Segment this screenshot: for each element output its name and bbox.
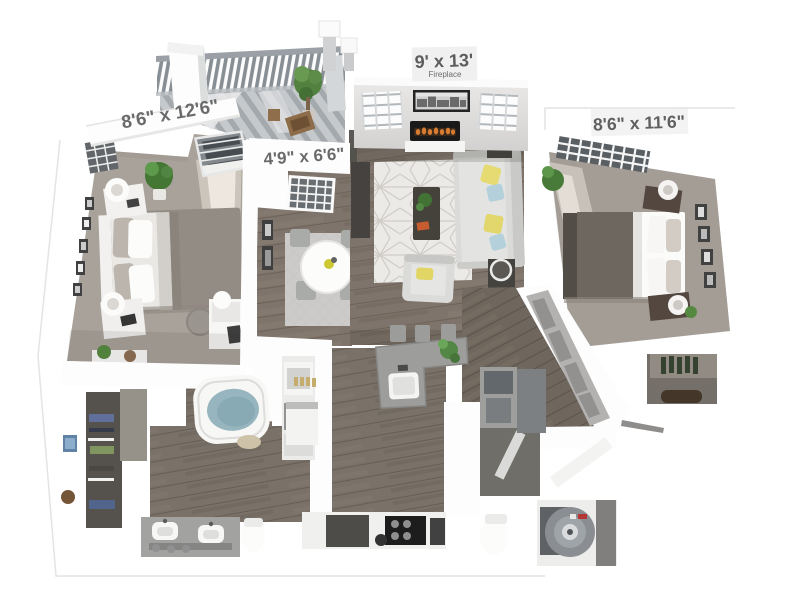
svg-text:8'6" x 11'6": 8'6" x 11'6" — [593, 111, 686, 134]
svg-text:Fireplace: Fireplace — [429, 70, 462, 79]
svg-text:9' x 13': 9' x 13' — [414, 50, 473, 72]
